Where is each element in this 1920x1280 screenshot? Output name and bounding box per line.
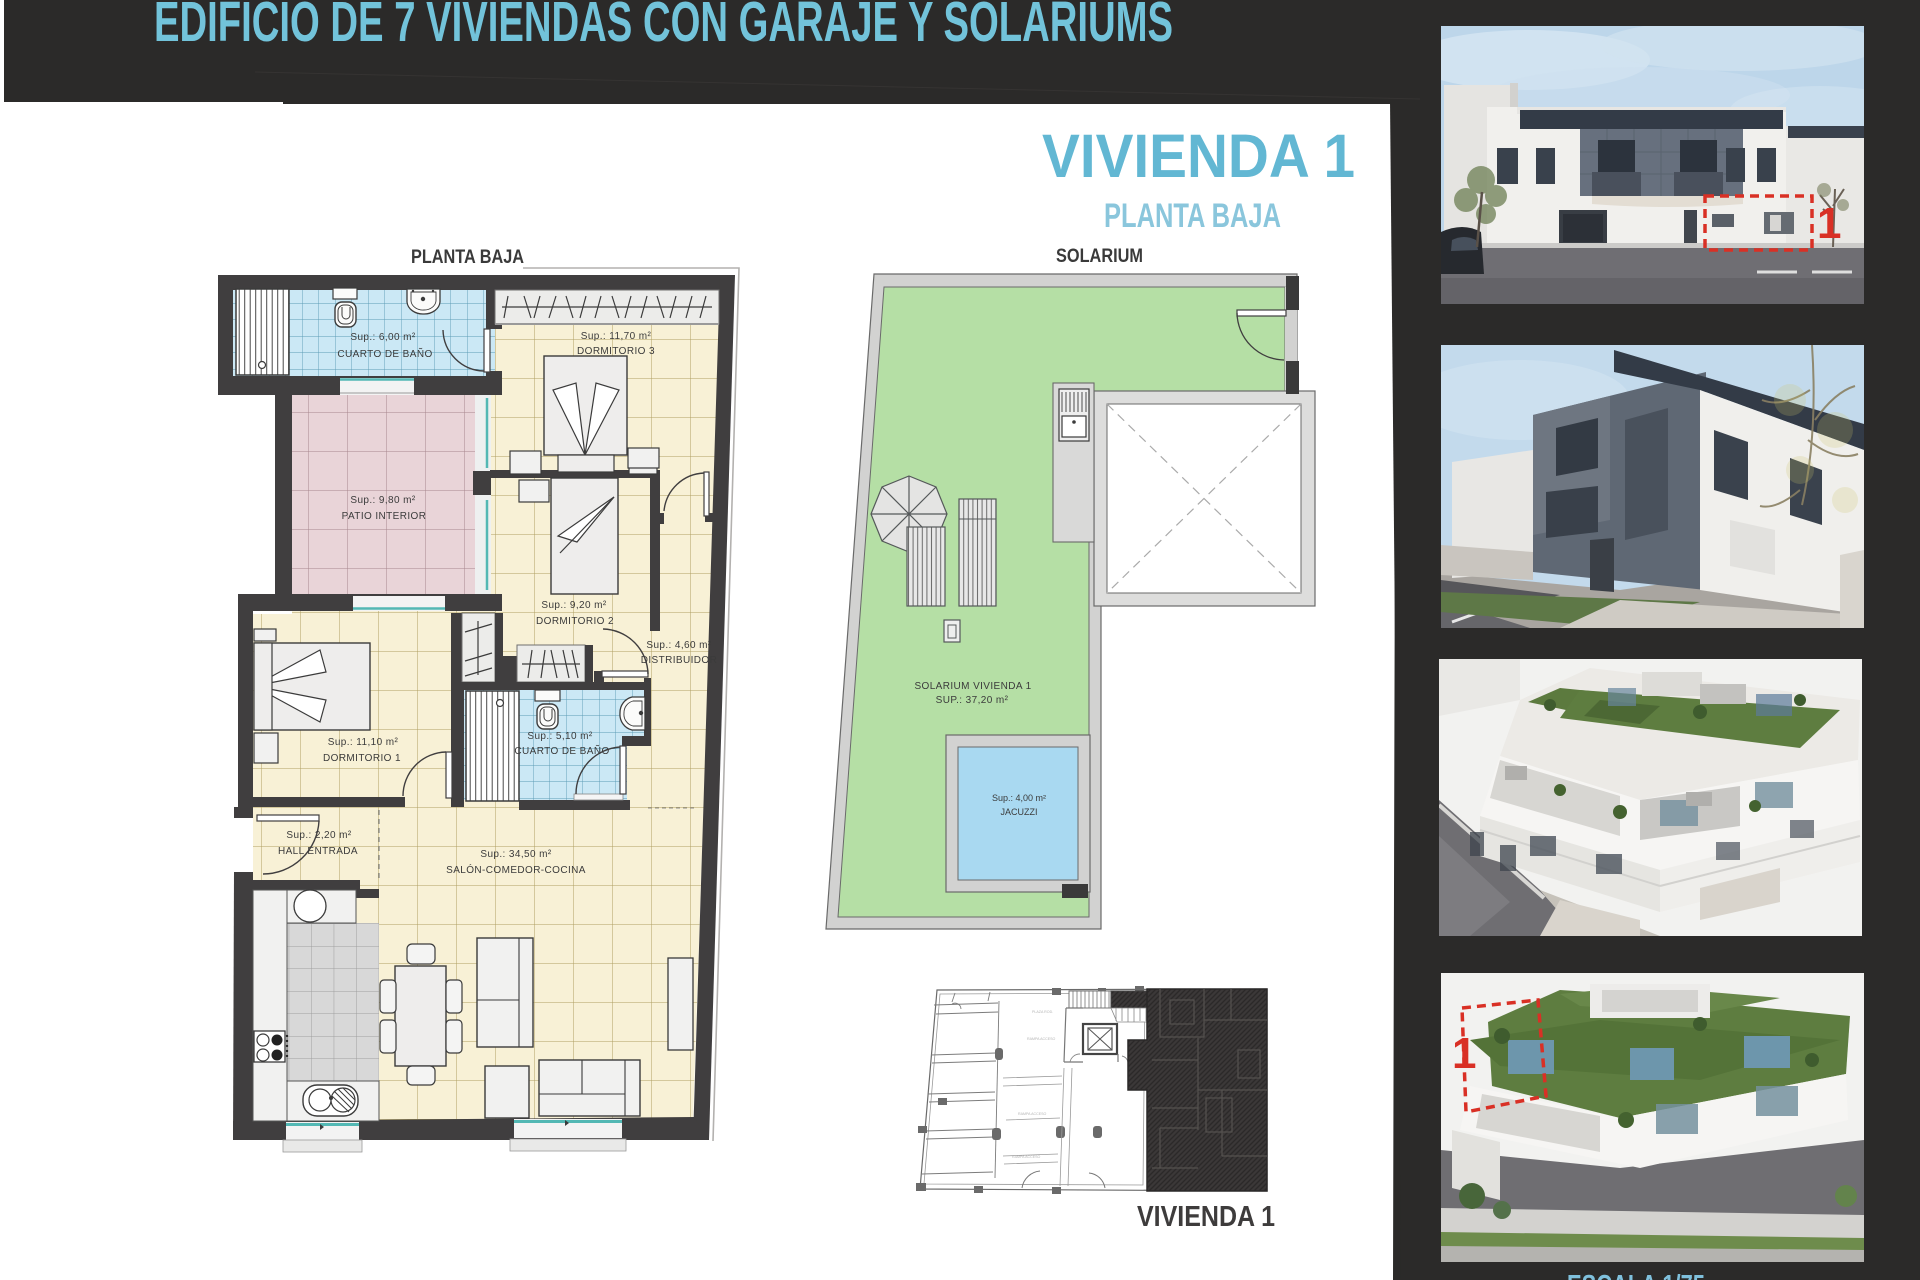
svg-text:DORMITORIO 1: DORMITORIO 1 bbox=[323, 753, 401, 764]
svg-text:EDIFICIO DE 7 VIVIENDAS CON GA: EDIFICIO DE 7 VIVIENDAS CON GARAJE Y SOL… bbox=[154, 0, 1173, 54]
svg-text:Sup.: 11,70 m²: Sup.: 11,70 m² bbox=[581, 331, 652, 342]
svg-text:PLAZA ROD.: PLAZA ROD. bbox=[1032, 1010, 1053, 1014]
svg-text:PLANTA BAJA: PLANTA BAJA bbox=[411, 246, 524, 268]
svg-text:DORMITORIO 2: DORMITORIO 2 bbox=[536, 616, 614, 627]
svg-text:PATIO INTERIOR: PATIO INTERIOR bbox=[342, 511, 427, 522]
svg-text:DISTRIBUIDOR: DISTRIBUIDOR bbox=[641, 655, 717, 666]
svg-text:CUARTO DE BAÑO: CUARTO DE BAÑO bbox=[514, 744, 609, 757]
svg-text:Sup.: 4,00 m²: Sup.: 4,00 m² bbox=[992, 793, 1046, 803]
svg-text:Sup.: 2,20 m²: Sup.: 2,20 m² bbox=[286, 830, 351, 841]
svg-text:ESCALA 1/75: ESCALA 1/75 bbox=[1567, 1270, 1705, 1280]
svg-text:Sup.: 6,00 m²: Sup.: 6,00 m² bbox=[350, 332, 415, 343]
svg-text:VIVIENDA 1: VIVIENDA 1 bbox=[1137, 1201, 1275, 1233]
svg-text:VIVIENDA 1: VIVIENDA 1 bbox=[1042, 122, 1355, 190]
svg-text:Sup.: 5,10 m²: Sup.: 5,10 m² bbox=[527, 731, 592, 742]
svg-text:SUP.: 37,20 m²: SUP.: 37,20 m² bbox=[936, 695, 1009, 706]
svg-text:1: 1 bbox=[1817, 199, 1841, 248]
svg-text:CUARTO DE BAÑO: CUARTO DE BAÑO bbox=[337, 347, 432, 360]
svg-text:SOLARIUM: SOLARIUM bbox=[1056, 245, 1143, 267]
svg-text:SOLARIUM VIVIENDA 1: SOLARIUM VIVIENDA 1 bbox=[914, 681, 1031, 692]
svg-text:HALL ENTRADA: HALL ENTRADA bbox=[278, 846, 358, 857]
svg-text:DORMITORIO 3: DORMITORIO 3 bbox=[577, 346, 655, 357]
svg-text:PLANTA BAJA: PLANTA BAJA bbox=[1104, 197, 1281, 235]
svg-text:Sup.: 9,20 m²: Sup.: 9,20 m² bbox=[541, 600, 606, 611]
svg-text:JACUZZI: JACUZZI bbox=[1001, 807, 1038, 817]
svg-text:Sup.: 4,60 m²: Sup.: 4,60 m² bbox=[646, 640, 711, 651]
svg-text:SALÓN-COMEDOR-COCINA: SALÓN-COMEDOR-COCINA bbox=[446, 863, 586, 876]
svg-text:RAMPA ACCESO: RAMPA ACCESO bbox=[1018, 1112, 1046, 1116]
svg-text:1: 1 bbox=[1452, 1029, 1476, 1078]
svg-text:Sup.: 34,50 m²: Sup.: 34,50 m² bbox=[480, 849, 551, 860]
svg-text:Sup.: 9,80 m²: Sup.: 9,80 m² bbox=[350, 495, 415, 506]
svg-text:RAMPA ACCESO: RAMPA ACCESO bbox=[1027, 1037, 1055, 1041]
svg-text:Sup.: 11,10 m²: Sup.: 11,10 m² bbox=[328, 737, 399, 748]
